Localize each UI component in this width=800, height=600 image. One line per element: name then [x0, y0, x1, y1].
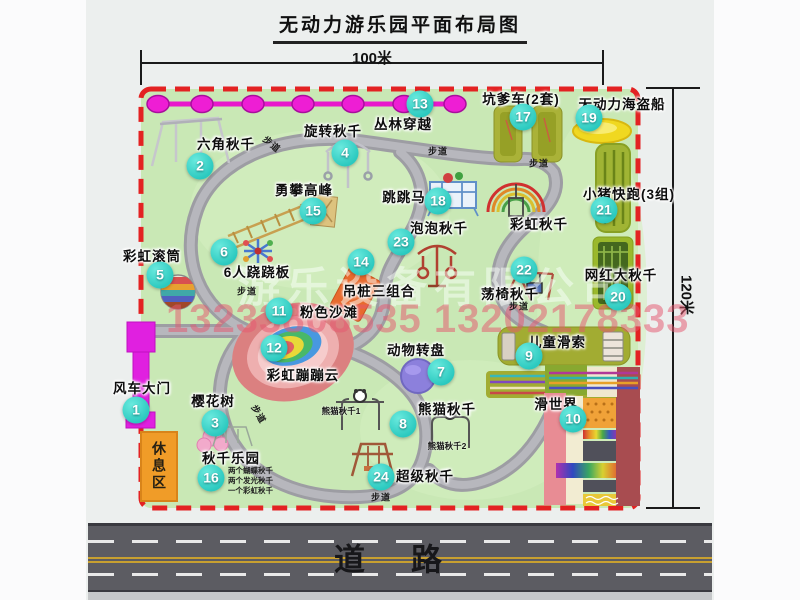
label-panda-swing: 熊猫秋千 — [418, 398, 476, 418]
road-curb — [88, 592, 712, 600]
badge-13: 13 — [407, 91, 434, 118]
badge-16: 16 — [198, 465, 225, 492]
label-climbing-peak: 勇攀高峰 — [275, 179, 333, 199]
badge-11: 11 — [266, 298, 293, 325]
badge-8: 8 — [390, 411, 417, 438]
label-hanging-posts: 吊桩三组合 — [343, 280, 416, 300]
label-pink-beach: 粉色沙滩 — [300, 301, 358, 321]
badge-20: 20 — [605, 284, 632, 311]
swing-park-detail-item: 两个发光秋千 — [228, 476, 273, 486]
badge-21: 21 — [591, 197, 618, 224]
path-tag: 步道 — [428, 145, 448, 158]
path-tag: 步道 — [529, 157, 549, 170]
badge-24: 24 — [368, 464, 395, 491]
badge-14: 14 — [348, 249, 375, 276]
swing-park-detail-list: 两个蝴蝶秋千 两个发光秋千 一个彩虹秋千 — [228, 466, 273, 496]
swing-park-detail-item: 一个彩虹秋千 — [228, 486, 273, 496]
label-bubble-swing: 泡泡秋千 — [410, 217, 468, 237]
label-super-swing: 超级秋千 — [396, 465, 454, 485]
label-rainbow-cloud: 彩虹蹦蹦云 — [267, 364, 340, 384]
label-seesaw: 6人跷跷板 — [224, 261, 291, 281]
swing-park-detail-item: 两个蝴蝶秋千 — [228, 466, 273, 476]
label-rotating-swing: 旋转秋千 — [304, 120, 362, 140]
badge-22: 22 — [511, 257, 538, 284]
badge-18: 18 — [425, 188, 452, 215]
badge-15: 15 — [300, 198, 327, 225]
path-tag: 步道 — [509, 300, 529, 313]
label-hexagon-swing: 六角秋千 — [197, 133, 255, 153]
badge-3: 3 — [202, 410, 229, 437]
label-jumping-horse: 跳跳马 — [382, 186, 426, 206]
path-tag: 步道 — [371, 491, 391, 504]
label-windmill-gate: 风车大门 — [113, 377, 171, 397]
badge-4: 4 — [332, 140, 359, 167]
label-animal-turntable: 动物转盘 — [387, 339, 445, 359]
badge-9: 9 — [516, 343, 543, 370]
label-cherry-tree: 樱花树 — [191, 390, 235, 410]
label-panda-swing-2: 熊猫秋千2 — [428, 440, 467, 452]
label-rainbow-roller: 彩虹滚筒 — [123, 245, 181, 265]
road-label: 道路 — [334, 535, 488, 580]
badge-12: 12 — [261, 335, 288, 362]
label-big-swing: 网红大秋千 — [585, 264, 658, 284]
label-panda-swing-1: 熊猫秋千1 — [322, 405, 361, 417]
badge-1: 1 — [123, 397, 150, 424]
playground-plan-canvas: 无动力游乐园平面布局图 — [0, 0, 800, 600]
rest-area-block: 休息区 — [140, 431, 178, 502]
badge-19: 19 — [576, 105, 603, 132]
badge-17: 17 — [510, 104, 537, 131]
rest-area-label: 休息区 — [149, 441, 169, 492]
badge-23: 23 — [388, 229, 415, 256]
dimension-label-top: 100米 — [352, 47, 392, 68]
badge-6: 6 — [211, 239, 238, 266]
path-tag: 步道 — [237, 285, 257, 298]
badge-7: 7 — [428, 359, 455, 386]
badge-5: 5 — [147, 262, 174, 289]
badge-2: 2 — [187, 153, 214, 180]
slide-world-drawing — [544, 365, 640, 506]
label-rainbow-swing: 彩虹秋千 — [510, 213, 568, 233]
badge-10: 10 — [560, 406, 587, 433]
